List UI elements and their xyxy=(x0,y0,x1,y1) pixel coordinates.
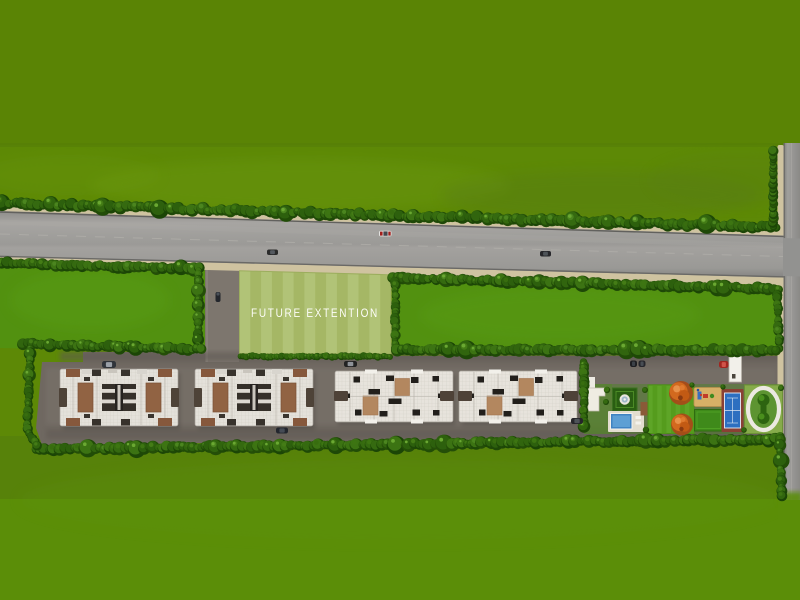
svg-text:FUTURE EXTENTION: FUTURE EXTENTION xyxy=(251,307,379,320)
